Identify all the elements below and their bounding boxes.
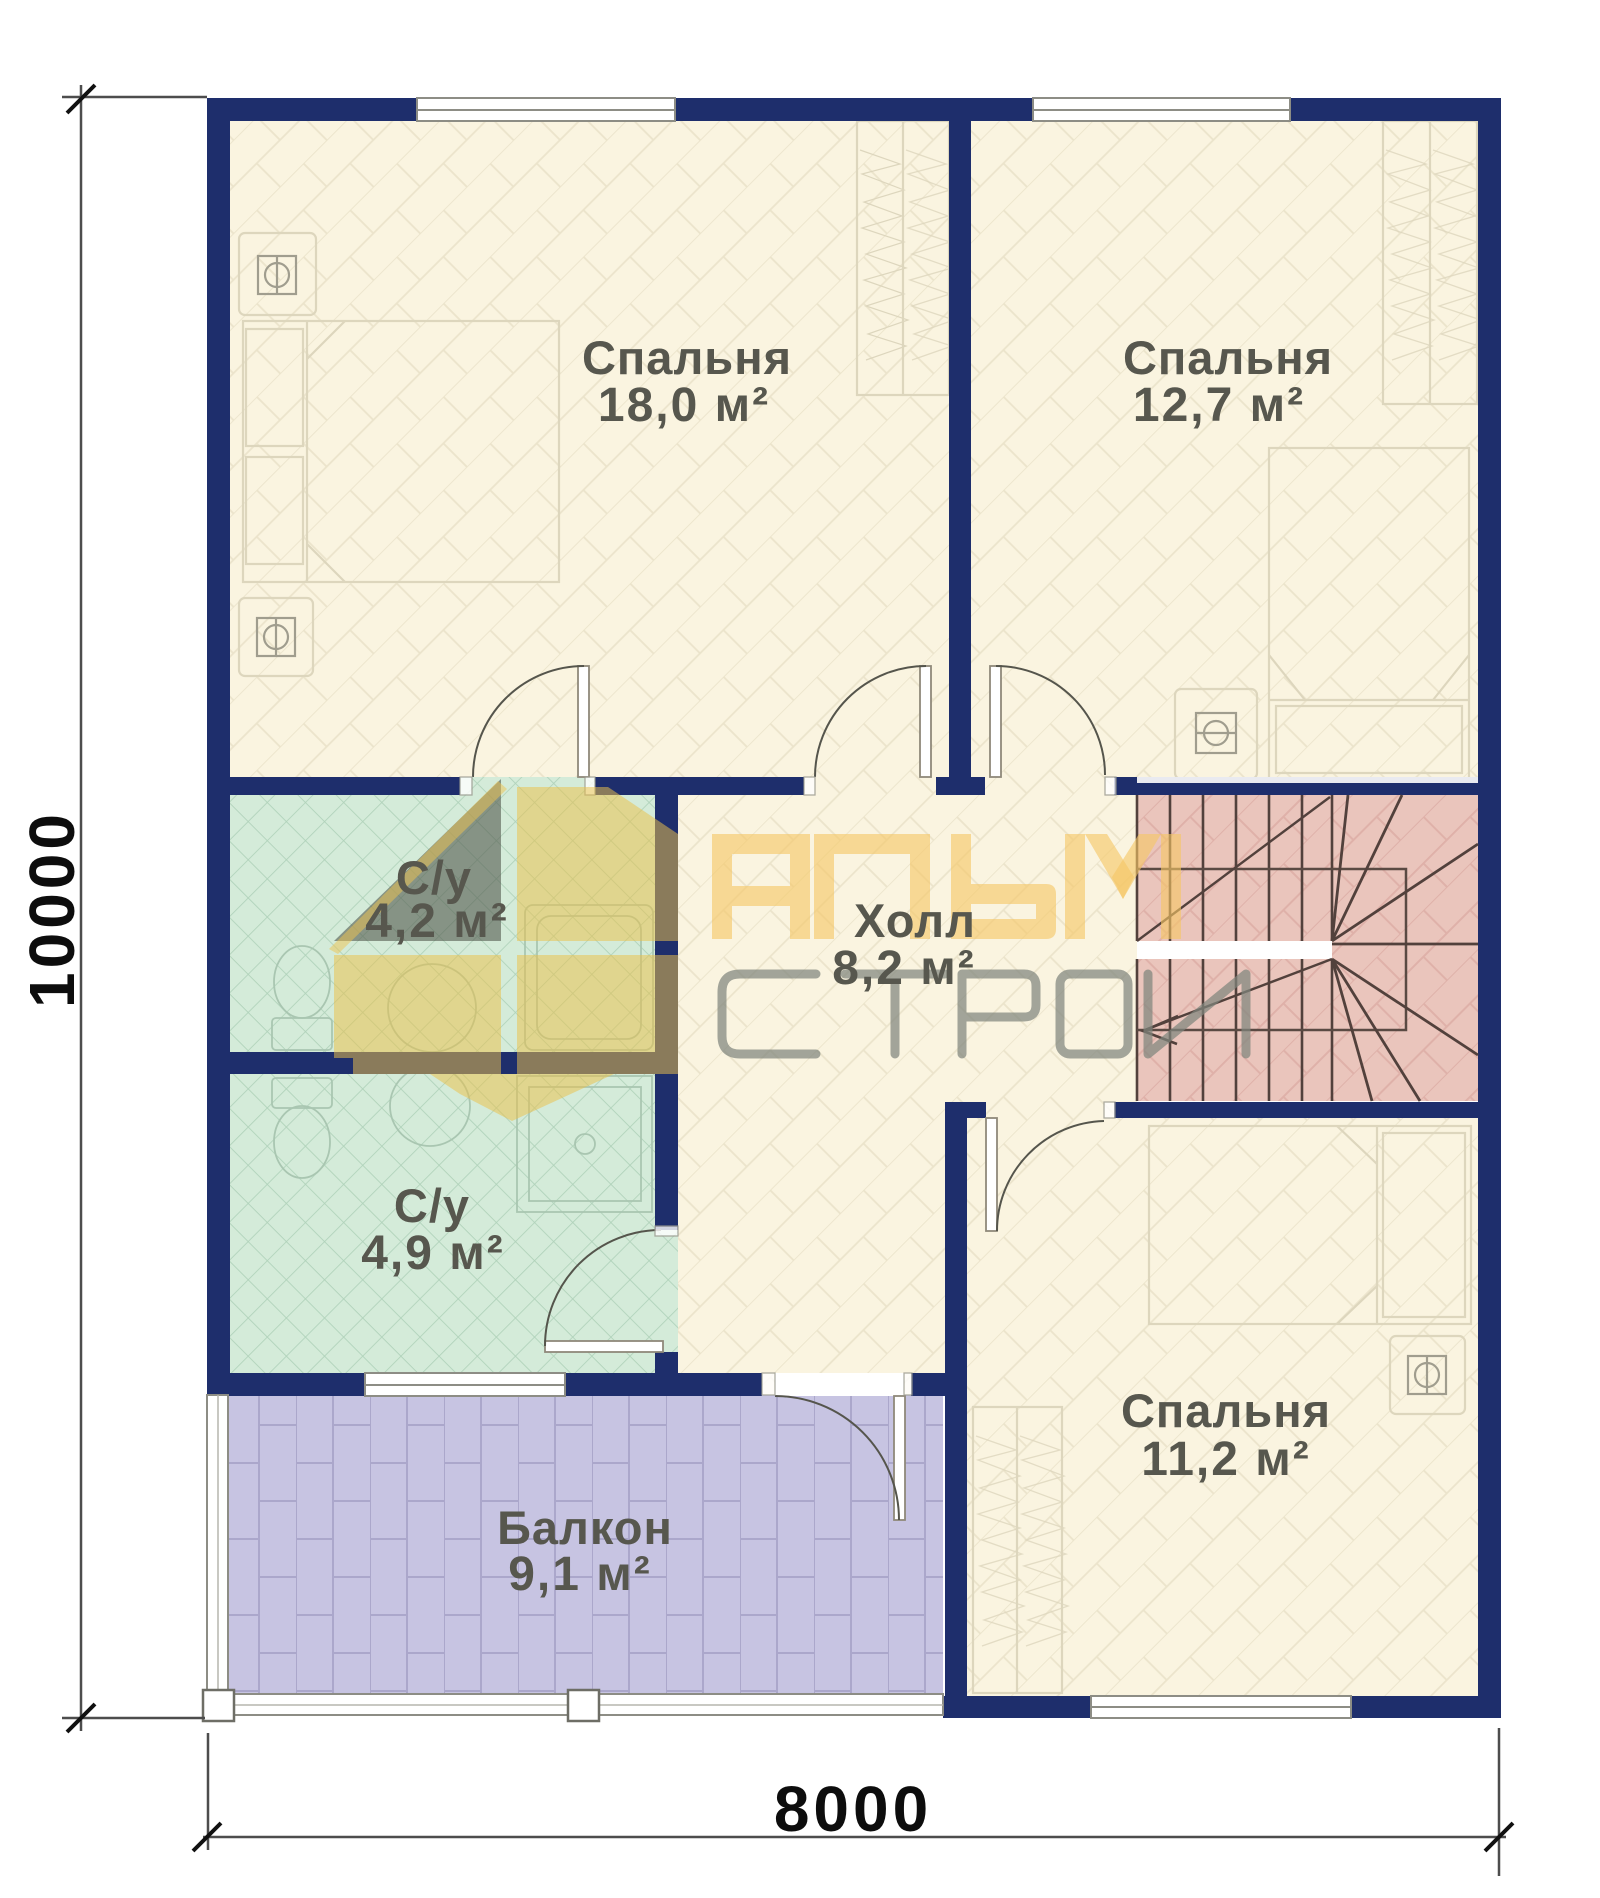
svg-text:18,0 м²: 18,0 м² xyxy=(598,379,770,432)
svg-text:9,1 м²: 9,1 м² xyxy=(508,1548,652,1601)
svg-text:Балкон: Балкон xyxy=(497,1501,673,1554)
svg-text:11,2 м²: 11,2 м² xyxy=(1141,1433,1311,1486)
svg-text:С/у: С/у xyxy=(394,1179,470,1232)
svg-text:8000: 8000 xyxy=(774,1773,932,1845)
svg-text:Спальня: Спальня xyxy=(582,331,792,384)
svg-text:4,2 м²: 4,2 м² xyxy=(365,895,509,948)
svg-text:12,7 м²: 12,7 м² xyxy=(1133,379,1305,432)
svg-text:4,9 м²: 4,9 м² xyxy=(361,1227,505,1280)
svg-text:10000: 10000 xyxy=(16,810,88,1008)
svg-text:8,2 м²: 8,2 м² xyxy=(832,942,976,995)
svg-text:Спальня: Спальня xyxy=(1121,1384,1331,1437)
svg-text:Спальня: Спальня xyxy=(1123,331,1333,384)
svg-text:Холл: Холл xyxy=(854,894,976,947)
